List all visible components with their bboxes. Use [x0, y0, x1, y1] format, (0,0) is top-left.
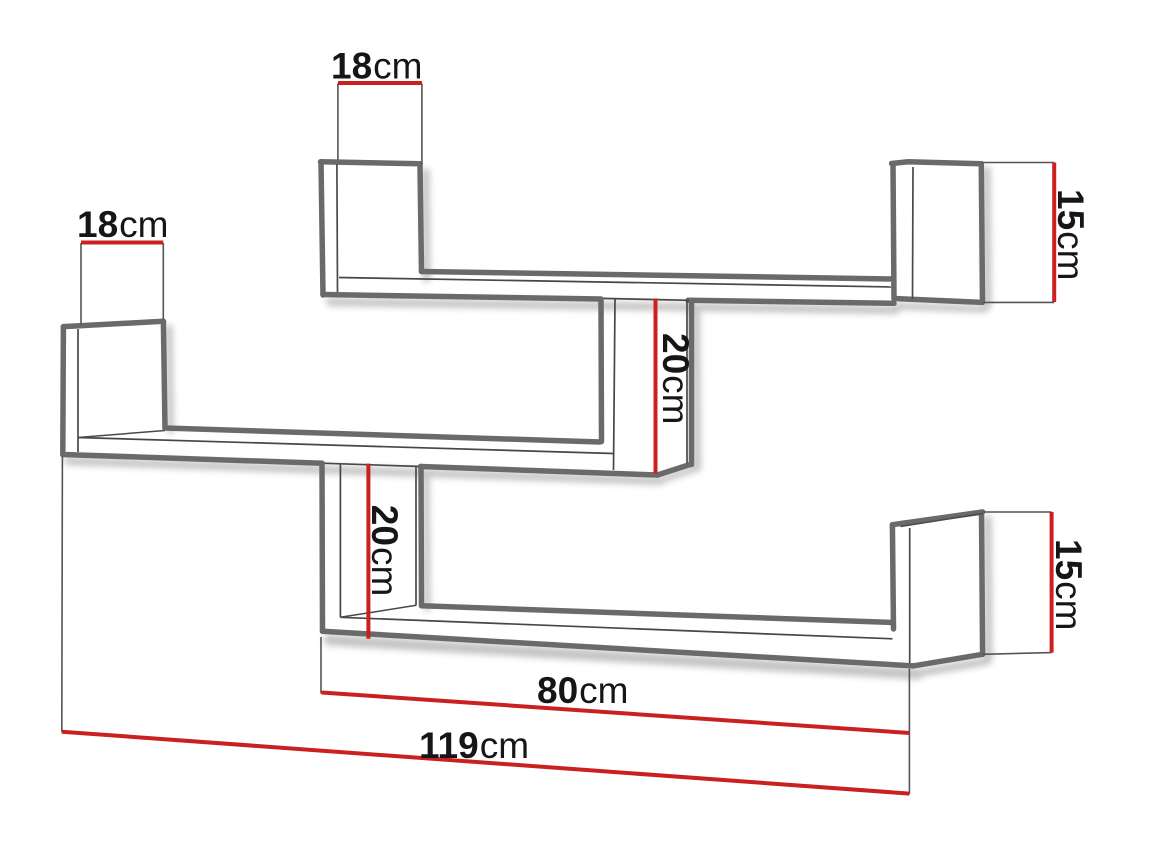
svg-text:119cm: 119cm: [419, 725, 529, 766]
svg-text:20cm: 20cm: [364, 505, 405, 596]
svg-text:15cm: 15cm: [1050, 189, 1091, 280]
svg-text:18cm: 18cm: [77, 204, 168, 245]
svg-text:15cm: 15cm: [1048, 539, 1089, 630]
svg-text:80cm: 80cm: [537, 670, 628, 711]
svg-text:20cm: 20cm: [655, 333, 696, 424]
svg-text:18cm: 18cm: [331, 46, 422, 87]
